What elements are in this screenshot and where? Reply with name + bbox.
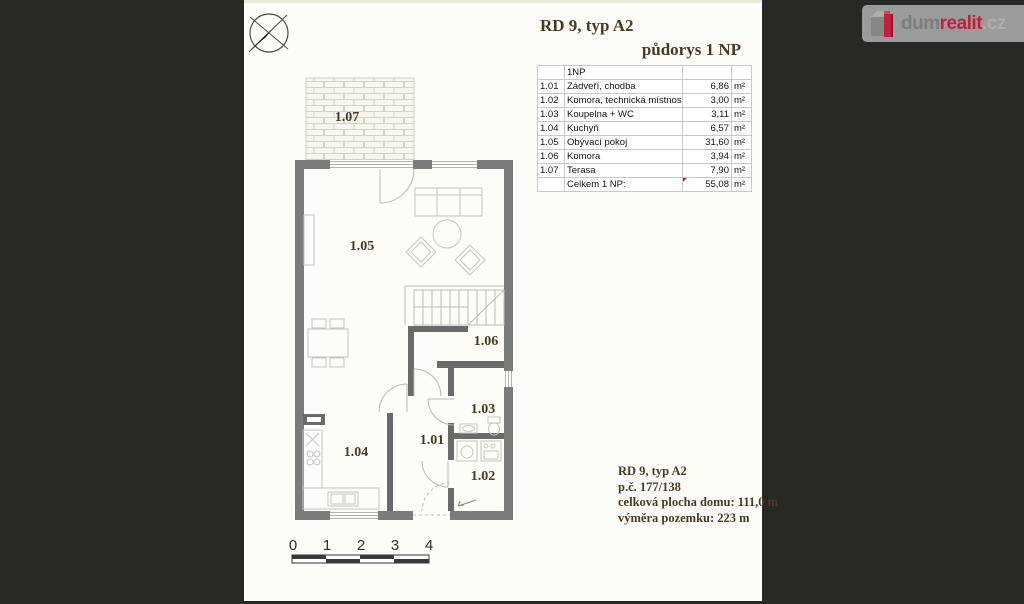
logo-cz: .cz: [982, 13, 1006, 34]
area-row: 1.05 Obývací pokoj 31,60 m²: [538, 136, 752, 150]
room-unit: m²: [732, 122, 752, 136]
table-cell: 1NP: [565, 66, 683, 80]
room-area: 6,86: [683, 80, 732, 94]
room-name: Obývací pokoj: [565, 136, 683, 150]
room-area: 3,11: [683, 108, 732, 122]
scale-tick-2: 2: [357, 537, 365, 554]
round-table-and-chairs: [406, 220, 485, 275]
area-table: 1NP 1.01 Zádveří, chodba 6,86 m² 1.02 Ko…: [537, 65, 752, 192]
room-unit: m²: [732, 136, 752, 150]
room-label-103: 1.03: [471, 402, 496, 417]
kitchen-counter: [303, 430, 379, 509]
room-label-102: 1.02: [471, 469, 496, 484]
dumrealit-book-icon: [870, 10, 896, 38]
room-name: Komora: [565, 150, 683, 164]
room-number: 1.06: [538, 150, 565, 164]
room-name: Koupelna + WC: [565, 108, 683, 122]
bathroom-fixtures: [460, 417, 500, 435]
room-number: 1.03: [538, 108, 565, 122]
total-area: 55,08: [683, 178, 732, 192]
info-line: celková plocha domu: 111,0 m: [618, 495, 778, 511]
area-total-row: Celkem 1 NP: 55,08 m²: [538, 178, 752, 192]
room-name: Kuchyň: [565, 122, 683, 136]
scale-tick-4: 4: [425, 537, 433, 554]
area-row: 1.06 Komora 3,94 m²: [538, 150, 752, 164]
area-row: 1.03 Koupelna + WC 3,11 m²: [538, 108, 752, 122]
room-number: 1.01: [538, 80, 565, 94]
room-label-106: 1.06: [474, 334, 499, 349]
room-label-104: 1.04: [344, 445, 369, 460]
property-info: RD 9, typ A2 p.č. 177/138 celková plocha…: [618, 464, 778, 526]
terrace-area: [306, 78, 414, 160]
floorplan-sheet: 1.07 1.05 1.06 1.03 1.01 1.04 1.02 0 1 2…: [244, 0, 762, 601]
scale-tick-3: 3: [391, 537, 399, 554]
table-cell: [732, 66, 752, 80]
comment-marker: [683, 178, 687, 182]
total-unit: m²: [732, 178, 752, 192]
scale-bar: 0 1 2 3 4: [289, 537, 433, 563]
compass-icon: [249, 14, 288, 52]
scale-tick-0: 0: [289, 537, 297, 554]
logo-dum: dum: [901, 13, 940, 34]
info-line: výměra pozemku: 223 m: [618, 511, 778, 527]
room-unit: m²: [732, 164, 752, 178]
area-row: 1.01 Zádveří, chodba 6,86 m²: [538, 80, 752, 94]
room-name: Zádveří, chodba: [565, 80, 683, 94]
room-label-107: 1.07: [335, 110, 360, 125]
room-unit: m²: [732, 150, 752, 164]
dumrealit-logo[interactable]: dumrealit.cz: [862, 5, 1024, 42]
room-name: Terasa: [565, 164, 683, 178]
area-row: 1.02 Komora, technická místnost 3,00 m²: [538, 94, 752, 108]
room-area: 7,90: [683, 164, 732, 178]
table-cell: [538, 66, 565, 80]
room-number: 1.04: [538, 122, 565, 136]
sofa: [415, 188, 482, 216]
area-row: 1.04 Kuchyň 6,57 m²: [538, 122, 752, 136]
room-number: 1.02: [538, 94, 565, 108]
cabinet: [304, 215, 314, 265]
area-table-header-row: 1NP: [538, 66, 752, 80]
utility-fixtures: [457, 441, 501, 461]
room-unit: m²: [732, 80, 752, 94]
room-unit: m²: [732, 94, 752, 108]
room-number: 1.05: [538, 136, 565, 150]
room-area: 6,57: [683, 122, 732, 136]
dining-table: [308, 319, 348, 367]
area-row: 1.07 Terasa 7,90 m²: [538, 164, 752, 178]
room-number: 1.07: [538, 164, 565, 178]
room-area: 3,94: [683, 150, 732, 164]
room-unit: m²: [732, 108, 752, 122]
info-line: p.č. 177/138: [618, 480, 778, 496]
room-area: 31,60: [683, 136, 732, 150]
stairs: [405, 286, 504, 325]
plan-subtitle: půdorys 1 NP: [540, 40, 741, 60]
room-label-101: 1.01: [420, 433, 445, 448]
table-cell: [538, 178, 565, 192]
table-cell: [683, 66, 732, 80]
plan-title: RD 9, typ A2: [540, 16, 634, 36]
room-area: 3,00: [683, 94, 732, 108]
door-arcs: [379, 169, 476, 515]
info-line: RD 9, typ A2: [618, 464, 778, 480]
room-label-105: 1.05: [350, 239, 375, 254]
dumrealit-logo-text: dumrealit.cz: [901, 13, 1006, 35]
scale-tick-1: 1: [323, 537, 331, 554]
room-name: Komora, technická místnost: [565, 94, 683, 108]
logo-realit: realit: [940, 13, 982, 34]
total-label: Celkem 1 NP:: [565, 178, 683, 192]
